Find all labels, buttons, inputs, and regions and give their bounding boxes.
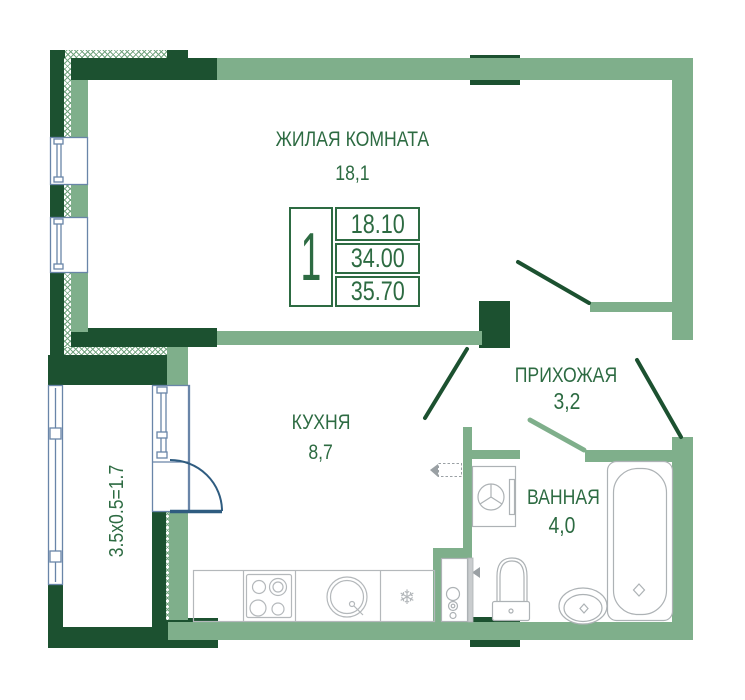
kitchen-counter [194,571,435,622]
room-label-living: ЖИЛАЯ КОМНАТА [252,128,452,151]
stamp-total-area: 34.00 [335,243,420,274]
wall-hatch [65,50,167,58]
room-label-hallway: ПРИХОЖАЯ [496,364,636,387]
wall-segment [463,427,472,560]
wall-segment [672,80,693,340]
wall-segment [169,512,188,620]
boiler-cabinet-icon [442,558,474,622]
wall-segment [48,355,167,385]
floor-plan: ❄ [0,0,745,700]
wall-segment [50,50,65,137]
bathroom-door-leaf [530,420,584,450]
wall-hatch [64,273,71,347]
balcony-door-swing [170,460,222,512]
wall-segment [585,450,672,462]
wall-segment [50,273,64,355]
wall-segment [71,58,217,80]
wall-segment [71,273,88,332]
stamp-living-area: 18.10 [335,207,420,241]
wall-segment [672,437,693,640]
room-area-bathroom: 4,0 [512,513,612,538]
bathroom-sink-icon [559,588,607,624]
wall-segment [71,80,88,137]
toilet-icon [493,558,530,621]
wall-segment [71,185,88,217]
wall-segment [217,331,482,345]
stamp-total-area-with-balcony: 35.70 [335,276,420,307]
room-area-kitchen: 8,7 [271,441,371,464]
snowflake-icon: ❄ [399,587,416,609]
room-area-hallway: 3,2 [517,389,617,414]
room-label-kitchen: КУХНЯ [261,411,381,434]
wall-segment [479,301,510,348]
wall-hatch [64,185,71,217]
vent-arrow-icon [445,562,481,583]
wall-hatch [64,58,71,137]
wall-segment [167,347,188,385]
wall-segment [472,450,520,459]
stove-icon [247,575,292,618]
kitchen-sink-icon [327,577,367,617]
balcony-door-unit [153,386,190,513]
wall-segment [590,302,672,312]
wall-segment [50,185,64,217]
stamp-rooms-count: 1 [289,207,333,307]
room-area-living: 18,1 [302,162,402,185]
wall-hatch [64,347,167,355]
balcony-glazing [49,386,63,585]
wall-segment [168,622,693,640]
room-label-bathroom: ВАННАЯ [503,486,623,509]
wall-segment [70,328,217,347]
wall-segment [217,58,693,80]
wall-segment [152,512,166,648]
wall-segment [167,50,188,58]
vent-arrow-icon [430,464,462,478]
wall-segment [433,548,463,560]
wall-segment [48,627,153,648]
